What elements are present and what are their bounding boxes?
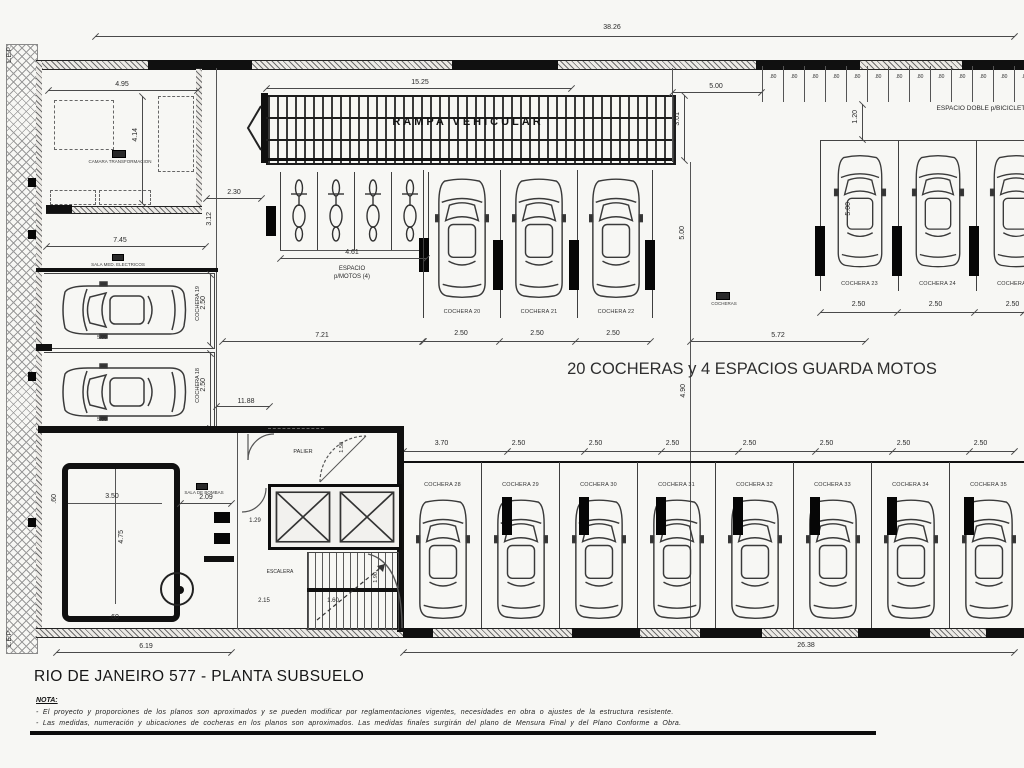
tank-dot bbox=[176, 586, 184, 594]
car-icon bbox=[911, 153, 965, 269]
dim-stall: 2.50 bbox=[897, 301, 974, 308]
dim-stall: 2.50 bbox=[557, 440, 634, 447]
summary-text: 20 COCHERAS y 4 ESPACIOS GUARDA MOTOS bbox=[567, 360, 937, 379]
ramp-rail bbox=[266, 139, 672, 141]
column bbox=[569, 240, 579, 290]
lift-shaft bbox=[273, 489, 333, 545]
dim-pump-w: 3.50 bbox=[105, 493, 119, 500]
moto-bays bbox=[280, 172, 428, 250]
dim-line bbox=[48, 90, 198, 91]
ramp-arrow-icon bbox=[246, 104, 262, 152]
dim-line bbox=[46, 246, 206, 247]
dim-camara-w: 4.95 bbox=[115, 81, 129, 88]
plan-title: RIO DE JANEIRO 577 - PLANTA SUBSUELO bbox=[34, 668, 364, 686]
stall-label: COCHERA 29 bbox=[482, 482, 559, 488]
stall-label: COCHERA 20 bbox=[424, 309, 500, 315]
column bbox=[969, 226, 979, 276]
parking-stall: COCHERA 31 bbox=[637, 462, 715, 628]
equipment-outline bbox=[50, 190, 96, 205]
dim-pass-h: 3.12 bbox=[206, 212, 213, 226]
wall-segment bbox=[700, 628, 762, 638]
car-icon bbox=[54, 364, 194, 420]
dim-line bbox=[216, 406, 270, 407]
dim-pump-total: 6.19 bbox=[139, 643, 153, 650]
dim-line bbox=[180, 503, 232, 504]
moto-icon bbox=[398, 176, 422, 244]
column bbox=[810, 497, 820, 535]
stall-label: COCHERA 35 bbox=[950, 482, 1024, 488]
bicycle-cell: .80 bbox=[1014, 66, 1024, 102]
bicycle-cell: .80 bbox=[993, 66, 1014, 102]
dim-bici-cell: .80 bbox=[980, 74, 987, 80]
dim-sala-w: 7.45 bbox=[113, 237, 127, 244]
stall-label: COCHERA 30 bbox=[560, 482, 637, 488]
wall-segment bbox=[46, 205, 72, 213]
dim-ramp-len: 15.25 bbox=[411, 79, 429, 86]
dim-aisle2: 5.72 bbox=[771, 332, 785, 339]
dim-line bbox=[210, 353, 211, 429]
column bbox=[266, 206, 276, 236]
dim-line bbox=[266, 88, 572, 89]
parking-stall: COCHERA 23 bbox=[820, 141, 898, 291]
dim-stair-h: 1.90 bbox=[374, 572, 380, 583]
stall-row-middle: COCHERA 20 COCHERA 21 COCHERA 22 bbox=[423, 170, 653, 318]
dim-pump-h: 4.75 bbox=[118, 530, 125, 544]
dim-pass-w: 2.30 bbox=[227, 189, 241, 196]
property-line-label-top: L.E.P. bbox=[7, 46, 14, 63]
dim-line bbox=[820, 312, 1024, 313]
wall-segment bbox=[266, 158, 672, 161]
wall-line bbox=[216, 68, 217, 430]
car-icon bbox=[589, 176, 643, 300]
lift-x-icon bbox=[337, 489, 397, 545]
dim-bici-cell: .80 bbox=[833, 74, 840, 80]
dim-bici-cell: .80 bbox=[875, 74, 882, 80]
dim-line bbox=[690, 341, 866, 342]
dim-bici-cell: .80 bbox=[812, 74, 819, 80]
parking-stall: COCHERA 32 bbox=[715, 462, 793, 628]
dim-stall: 2.50 bbox=[480, 440, 557, 447]
dim-car-len: 5.00 bbox=[97, 336, 107, 341]
dim-stall: 2.50 bbox=[499, 330, 575, 337]
wall-segment bbox=[403, 628, 433, 638]
door-arc-icon bbox=[240, 486, 268, 514]
dim-stall: 2.50 bbox=[788, 440, 865, 447]
car-icon bbox=[435, 176, 489, 300]
moto-cell bbox=[281, 172, 318, 250]
wall-segment bbox=[858, 628, 930, 638]
bicycle-cell: .80 bbox=[909, 66, 930, 102]
dim-ramp-w: 3.01 bbox=[674, 112, 681, 126]
dim-row-bottom: 3.702.502.502.502.502.502.502.50 bbox=[403, 440, 1024, 447]
dim-line bbox=[403, 451, 1015, 452]
car-icon bbox=[54, 282, 194, 338]
dim-bici-cell: .80 bbox=[959, 74, 966, 80]
pump-unit bbox=[214, 512, 230, 523]
parking-stall: COCHERA 28 bbox=[403, 462, 481, 628]
dim-car-len: 5.00 bbox=[97, 418, 107, 423]
title-rule bbox=[30, 731, 876, 735]
moto-icon bbox=[287, 176, 311, 244]
equipment-outline bbox=[54, 100, 114, 150]
wall-segment bbox=[452, 60, 558, 70]
wall-segment bbox=[36, 268, 218, 272]
lift-shaft bbox=[337, 489, 397, 545]
stall-label: COCHERA 32 bbox=[716, 482, 793, 488]
stair-arrow-icon bbox=[307, 552, 403, 628]
lift-x-icon bbox=[273, 489, 333, 545]
parking-stall: COCHERA 21 bbox=[500, 170, 577, 318]
room-label-sala-med: SALA MED. ELECTRICOS bbox=[91, 263, 145, 268]
parking-stall: COCHERA 24 bbox=[898, 141, 976, 291]
stall-label: COCHERA 22 bbox=[578, 309, 654, 315]
car-icon bbox=[989, 153, 1024, 269]
dim-car-len-m: 5.00 bbox=[679, 226, 686, 240]
column bbox=[579, 497, 589, 535]
moto-icon bbox=[361, 176, 385, 244]
room-tag-icon bbox=[716, 292, 730, 300]
stall-label: COCHERA 21 bbox=[501, 309, 577, 315]
line bbox=[115, 469, 116, 604]
moto-cell bbox=[318, 172, 355, 250]
lot-hatch bbox=[6, 44, 38, 654]
column bbox=[733, 497, 743, 535]
parking-stall: COCHERA 29 bbox=[481, 462, 559, 628]
stall-label: COCHERA 33 bbox=[794, 482, 871, 488]
dim-moto-w: 4.61 bbox=[345, 249, 359, 256]
dim-pump-m1: .60 bbox=[51, 494, 58, 504]
dim-bici-cell: .80 bbox=[917, 74, 924, 80]
dim-stall: 2.50 bbox=[575, 330, 651, 337]
dim-bici-cell: .80 bbox=[896, 74, 903, 80]
dim-line bbox=[142, 96, 143, 204]
dim-bici-depth: 1.20 bbox=[852, 110, 859, 124]
wall-segment bbox=[572, 628, 640, 638]
column bbox=[887, 497, 897, 535]
dim-total-top: 38.26 bbox=[603, 24, 621, 31]
dim-stall: 2.50 bbox=[711, 440, 788, 447]
parking-stall: COCHERA 34 bbox=[871, 462, 949, 628]
bicycle-cell: .80 bbox=[972, 66, 993, 102]
dim-line bbox=[672, 92, 762, 93]
dim-stall: 2.50 bbox=[820, 301, 897, 308]
dim-pump-m2: .60 bbox=[109, 614, 119, 621]
bicycle-cell: .80 bbox=[867, 66, 888, 102]
dim-left-stall1: 2.50 bbox=[200, 296, 207, 310]
dim-stall: 2.50 bbox=[423, 330, 499, 337]
dim-line bbox=[56, 652, 232, 653]
bicycle-cell: .80 bbox=[888, 66, 909, 102]
room-tag-icon bbox=[196, 483, 208, 490]
column bbox=[645, 240, 655, 290]
dim-line bbox=[403, 652, 1015, 653]
column bbox=[493, 240, 503, 290]
dim-stall: 2.50 bbox=[634, 440, 711, 447]
vehicle-ramp bbox=[266, 95, 676, 165]
dim-line bbox=[222, 341, 423, 342]
dim-stair-w2: 1.60 bbox=[327, 598, 339, 604]
car-icon bbox=[512, 176, 566, 300]
dim-line bbox=[862, 104, 863, 140]
notes-heading: NOTA: bbox=[36, 697, 58, 704]
dim-camara-h: 4.14 bbox=[132, 128, 139, 142]
dim-line bbox=[210, 274, 211, 346]
wall-segment bbox=[986, 628, 1024, 638]
parking-stall: COCHERA 25 bbox=[976, 141, 1024, 291]
ramp-label: RAMPA VEHICULAR bbox=[392, 116, 543, 128]
note-line: - El proyecto y proporciones de los plan… bbox=[36, 709, 674, 716]
dim-bici-cell: .80 bbox=[938, 74, 945, 80]
dim-car-len-r: 5.00 bbox=[845, 202, 852, 216]
moto-icon bbox=[324, 176, 348, 244]
room-label-escalera: ESCALERA bbox=[267, 570, 294, 575]
dim-line bbox=[684, 95, 685, 161]
column bbox=[964, 497, 974, 535]
stall-label: COCHERA 34 bbox=[872, 482, 949, 488]
stall-label: COCHERA 31 bbox=[638, 482, 715, 488]
moto-cell bbox=[355, 172, 392, 250]
dim-gap: 5.00 bbox=[709, 83, 723, 90]
stall-row-bottom: COCHERA 28 COCHERA 29 COCHERA 30 COCHERA… bbox=[403, 462, 1024, 628]
dim-stall: 2.50 bbox=[865, 440, 942, 447]
wall-segment bbox=[36, 344, 52, 351]
parking-stall: COCHERA 20 bbox=[423, 170, 500, 318]
stall-label: COCHERA 23 bbox=[821, 281, 898, 287]
wall-line bbox=[237, 433, 238, 629]
label-cocheras-tag: COCHERAS bbox=[711, 302, 737, 307]
note-line: - Las medidas, numeración y ubicaciones … bbox=[36, 720, 681, 727]
lintel bbox=[268, 428, 324, 429]
dim-left-stall2: 2.50 bbox=[200, 378, 207, 392]
ramp-end-wall bbox=[261, 93, 268, 163]
column bbox=[656, 497, 666, 535]
dim-bombas-w: 2.09 bbox=[199, 494, 213, 501]
bicycle-cell: .80 bbox=[825, 66, 846, 102]
bicycle-cell: .80 bbox=[930, 66, 951, 102]
room-label-palier: PALIER bbox=[293, 450, 312, 456]
floor-plan: L.E.P. L.E.P. 38.26 CAMARA TRANSFORMACIO… bbox=[0, 0, 1024, 768]
dim-line-total-top bbox=[95, 36, 1015, 37]
dim-bici-cell: .80 bbox=[1001, 74, 1008, 80]
dim-row-middle: 2.502.502.50 bbox=[423, 330, 651, 337]
car-icon bbox=[416, 496, 470, 622]
stall-label: COCHERA 28 bbox=[404, 482, 481, 488]
column bbox=[815, 226, 825, 276]
equipment-outline bbox=[158, 96, 194, 172]
bicycle-cell: .80 bbox=[951, 66, 972, 102]
label-moto-2: p/MOTOS (4) bbox=[334, 274, 370, 280]
bicycle-cell: .80 bbox=[804, 66, 825, 102]
column bbox=[502, 497, 512, 535]
bicycle-cell: .80 bbox=[762, 66, 783, 102]
label-moto-1: ESPACIO bbox=[339, 266, 365, 272]
dim-aisle1: 7.21 bbox=[315, 332, 329, 339]
dim-aisle-h: 4.90 bbox=[680, 384, 687, 398]
label-bici: ESPACIO DOBLE p/BICICLETAS bbox=[937, 106, 1024, 113]
stall-label: COCHERA 24 bbox=[899, 281, 976, 287]
parking-stall: COCHERA 22 bbox=[577, 170, 654, 318]
parking-stall: COCHERA 35 bbox=[949, 462, 1024, 628]
lift-shafts bbox=[268, 484, 402, 550]
dim-door-r: 1.50 bbox=[340, 442, 346, 453]
door-arc-icon bbox=[246, 432, 276, 462]
property-line-label-bottom: L.E.P. bbox=[7, 630, 14, 647]
parking-stall: COCHERA 33 bbox=[793, 462, 871, 628]
dim-bici-cell: .80 bbox=[854, 74, 861, 80]
bicycle-cell: .80 bbox=[783, 66, 804, 102]
dim-palier-d: 1.29 bbox=[249, 518, 261, 524]
dim-bici-cell: .80 bbox=[770, 74, 777, 80]
dim-stair-w1: 2.15 bbox=[258, 598, 270, 604]
wall-segment bbox=[38, 426, 404, 433]
dim-stall: 2.50 bbox=[942, 440, 1019, 447]
dim-left-len: 11.88 bbox=[238, 398, 255, 405]
wall-segment bbox=[204, 556, 234, 562]
dim-line bbox=[206, 198, 262, 199]
dim-stall: 2.50 bbox=[974, 301, 1024, 308]
dim-row-right: 2.502.502.50 bbox=[820, 301, 1024, 308]
bicycle-cell: .80 bbox=[846, 66, 867, 102]
grid-line bbox=[672, 68, 673, 162]
column bbox=[892, 226, 902, 276]
dim-line bbox=[423, 341, 651, 342]
dim-total-bottom: 26.38 bbox=[797, 642, 815, 649]
car-icon bbox=[833, 153, 887, 269]
pump-unit bbox=[214, 533, 230, 544]
dim-line bbox=[280, 258, 427, 259]
dim-stall: 3.70 bbox=[403, 440, 480, 447]
dim-bici-cell: .80 bbox=[791, 74, 798, 80]
stall-label: COCHERA 25 bbox=[977, 281, 1024, 287]
room-tag-icon bbox=[112, 254, 124, 261]
room-tag-icon bbox=[112, 150, 126, 158]
parking-stall: COCHERA 30 bbox=[559, 462, 637, 628]
bicycle-spaces: .80 .80 .80 .80 .80 .80 .80 .80 .80 .80 … bbox=[762, 66, 1024, 102]
